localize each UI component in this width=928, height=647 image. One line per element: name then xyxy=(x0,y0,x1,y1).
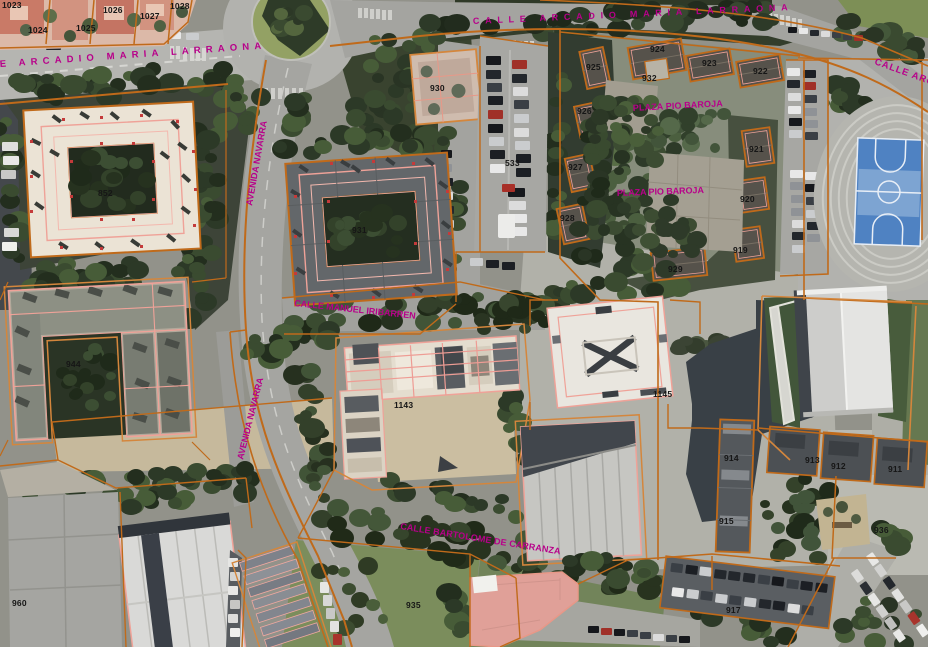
svg-text:923: 923 xyxy=(702,58,717,68)
svg-text:926: 926 xyxy=(577,106,592,116)
svg-text:928: 928 xyxy=(560,213,575,223)
svg-text:1023: 1023 xyxy=(2,0,22,10)
svg-text:1026: 1026 xyxy=(103,5,123,15)
svg-text:919: 919 xyxy=(733,245,748,255)
svg-text:1027: 1027 xyxy=(140,11,160,21)
svg-text:533: 533 xyxy=(505,158,520,168)
svg-text:1024: 1024 xyxy=(28,25,48,35)
svg-text:944: 944 xyxy=(66,359,81,369)
svg-text:922: 922 xyxy=(753,66,768,76)
svg-text:920: 920 xyxy=(740,194,755,204)
svg-text:1028: 1028 xyxy=(170,1,190,11)
svg-text:936: 936 xyxy=(874,525,889,535)
svg-text:921: 921 xyxy=(749,144,764,154)
svg-text:932: 932 xyxy=(642,73,657,83)
svg-text:852: 852 xyxy=(98,188,113,198)
svg-text:917: 917 xyxy=(726,605,741,615)
svg-text:930: 930 xyxy=(430,83,445,93)
svg-text:915: 915 xyxy=(719,516,734,526)
svg-text:960: 960 xyxy=(12,598,27,608)
svg-text:929: 929 xyxy=(668,264,683,274)
svg-text:914: 914 xyxy=(724,453,739,463)
svg-text:927: 927 xyxy=(568,162,583,172)
svg-text:913: 913 xyxy=(805,455,820,465)
svg-text:1025: 1025 xyxy=(76,23,96,33)
svg-text:912: 912 xyxy=(831,461,846,471)
svg-text:1145: 1145 xyxy=(653,389,672,399)
svg-text:1143: 1143 xyxy=(394,400,413,410)
svg-text:924: 924 xyxy=(650,44,665,54)
svg-text:911: 911 xyxy=(888,464,902,474)
svg-text:935: 935 xyxy=(406,600,421,610)
svg-text:931: 931 xyxy=(352,225,367,235)
svg-text:925: 925 xyxy=(586,62,601,72)
